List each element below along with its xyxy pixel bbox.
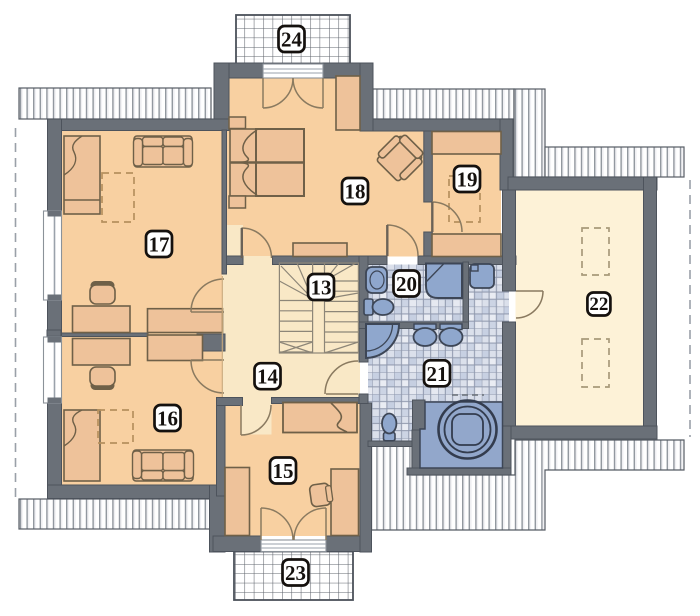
svg-text:24: 24 [281,28,303,52]
svg-text:16: 16 [157,407,178,431]
svg-text:17: 17 [149,233,170,257]
svg-text:18: 18 [345,180,366,204]
svg-text:20: 20 [396,272,417,296]
svg-text:14: 14 [257,365,279,389]
svg-text:19: 19 [457,168,478,192]
svg-text:22: 22 [589,294,608,315]
svg-text:13: 13 [311,276,332,300]
svg-text:15: 15 [273,459,294,483]
svg-text:23: 23 [285,561,306,585]
svg-text:21: 21 [427,362,448,386]
